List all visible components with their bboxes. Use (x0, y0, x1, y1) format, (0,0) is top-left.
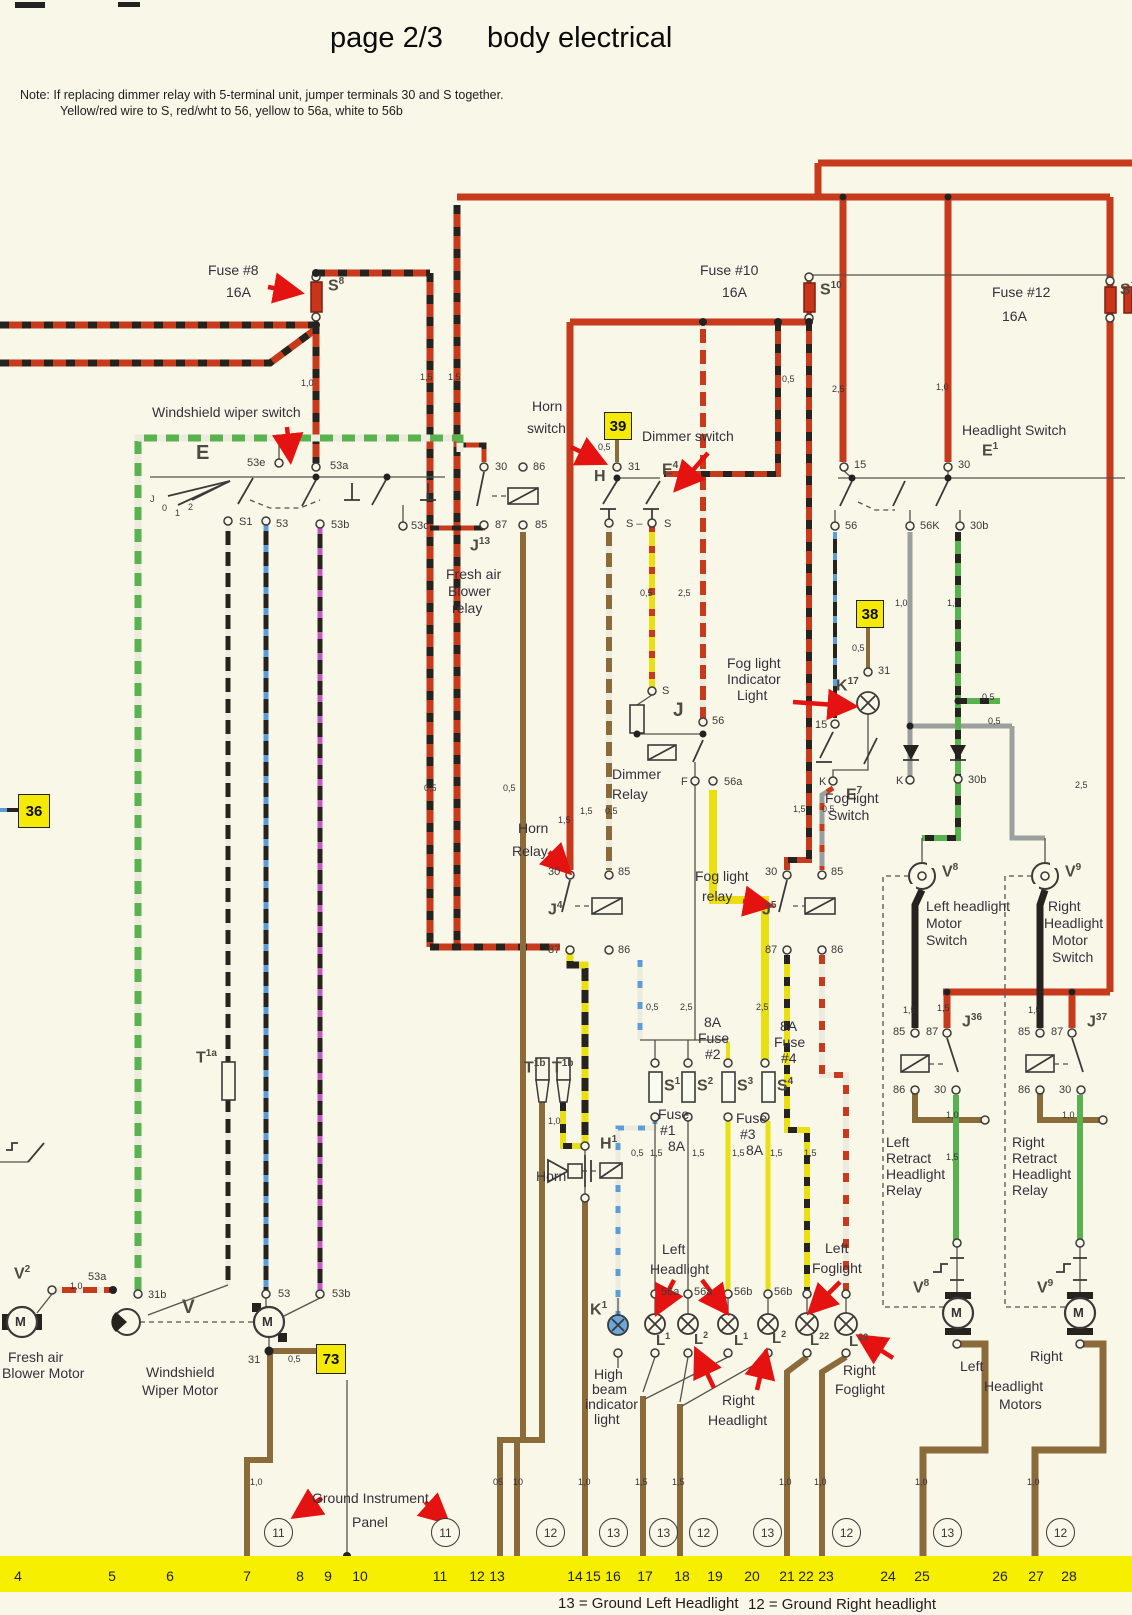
horn-switch-31: 31 (628, 461, 640, 473)
left-headlight-label1: Left (662, 1241, 685, 1257)
j5-87: 87 (765, 944, 777, 956)
ground-panel-label2: Panel (352, 1514, 388, 1530)
red-black-wires (0, 205, 809, 947)
bar-number: 22 (798, 1568, 814, 1584)
terminal-53b: 53b (331, 519, 349, 531)
pos-2: 2 (188, 502, 193, 512)
bar-number: 26 (992, 1568, 1008, 1584)
dimmer-relay-56: 56 (712, 715, 724, 727)
bar-number: 16 (605, 1568, 621, 1584)
blower-motor-label1: Fresh air (8, 1349, 63, 1365)
bar-number: 11 (433, 1568, 448, 1584)
size: 1,0 (947, 598, 960, 608)
highbeam-label2: beam (592, 1381, 627, 1397)
scan-mark (118, 2, 140, 7)
terminal-53: 53 (276, 518, 288, 530)
e7-k2: K (896, 775, 903, 787)
size: 1,0 (70, 1281, 83, 1291)
size: 0,5 (640, 588, 653, 598)
blower-motor-label2: Blower Motor (2, 1365, 84, 1381)
bar-number: 17 (637, 1568, 653, 1584)
lamp1-56a: 56a (661, 1286, 679, 1298)
left-foglight-label1: Left (825, 1240, 848, 1256)
j5-86: 86 (831, 944, 843, 956)
j37-87: 87 (1051, 1026, 1063, 1038)
fuse12-label: Fuse #12 (992, 284, 1050, 300)
j36-label1: Left (886, 1134, 909, 1150)
size: 2,5 (756, 1002, 769, 1012)
size: 1,0 (946, 1110, 959, 1120)
e1-30: 30 (958, 459, 970, 471)
fuse1-word: Fuse (658, 1106, 689, 1122)
size: 1,0 (548, 1116, 561, 1126)
l2r-symbol: L2 (772, 1329, 786, 1347)
size: 0,5 (646, 1002, 659, 1012)
e1-56: 56 (845, 520, 857, 532)
v9-motor-symbol: V9 (1037, 1278, 1053, 1297)
fog-relay-label1: Fog light (695, 868, 749, 884)
size: 0,5 (605, 806, 618, 816)
motors-label1: Headlight (984, 1378, 1043, 1394)
dimmer-relay-symbol: J (673, 700, 684, 722)
j4-86: 86 (618, 944, 630, 956)
connector-box-39: 39 (604, 412, 632, 440)
e7-15: 15 (815, 719, 827, 731)
legend-ground-left: 13 = Ground Left Headlight (558, 1595, 739, 1612)
size: 1,5 (903, 1005, 916, 1015)
j36-87: 87 (926, 1026, 938, 1038)
ground-circle: 11 (431, 1518, 460, 1547)
t-connectors (222, 1058, 570, 1102)
ground-circle: 12 (1046, 1518, 1075, 1547)
highbeam-label1: High (594, 1366, 623, 1382)
ground-panel-label1: Ground Instrument (312, 1490, 429, 1506)
j13-86: 86 (533, 461, 545, 473)
j37-label4: Relay (1012, 1182, 1048, 1198)
pos-0: 0 (162, 503, 167, 513)
wiper-motor-m: M (262, 1314, 273, 1329)
blower-relay-label1: Fresh air (446, 566, 501, 582)
wiper-motor-label2: Wiper Motor (142, 1382, 218, 1398)
fuse2-amps: 8A (704, 1014, 721, 1030)
fog-ind-31: 31 (878, 665, 890, 677)
right-foglight-label1: Right (843, 1362, 876, 1378)
fuse10-amps: 16A (722, 284, 747, 300)
fuse10-symbol: S10 (820, 280, 842, 299)
ground-circle: 13 (933, 1518, 962, 1547)
scan-mark (15, 2, 45, 8)
size: 0,5 (982, 692, 995, 702)
size: 1,5 (946, 1152, 959, 1162)
fog-ind-label1: Fog light (727, 655, 781, 671)
size: 1,0 (301, 378, 314, 388)
left-motor-switch-label1: Left headlight (926, 898, 1010, 914)
e7-30b: 30b (968, 774, 986, 786)
dimmer-switch-label: Dimmer switch (642, 428, 734, 444)
size: 0,5 (852, 643, 865, 653)
bar-number: 28 (1061, 1568, 1077, 1584)
blower-relay-label3: relay (452, 600, 482, 616)
size: 0,5 (598, 442, 611, 452)
bar-number: 10 (352, 1568, 368, 1584)
bar-number: 18 (674, 1568, 690, 1584)
horn-switch-label1: Horn (532, 398, 562, 414)
connector-box-73: 73 (316, 1344, 346, 1374)
j4-87: 87 (548, 944, 560, 956)
v8-motor-symbol: V8 (913, 1278, 929, 1297)
wiper-switch-label: Windshield wiper switch (152, 404, 301, 420)
size: 1,0 (915, 1477, 928, 1487)
dimmer-relay-56a: 56a (724, 776, 742, 788)
left-motor-switch-label3: Switch (926, 932, 967, 948)
fog-ind-label3: Light (737, 687, 767, 703)
bar-number: 19 (707, 1568, 723, 1584)
l1-symbol: L1 (656, 1331, 670, 1349)
fuse10-label: Fuse #10 (700, 262, 758, 278)
size: 1,5 (732, 1148, 745, 1158)
bar-number: 14 (567, 1568, 583, 1584)
l22-symbol: L22 (810, 1331, 829, 1349)
dimmer-relay-f: F (681, 776, 688, 788)
lamp2-56a: 56a (694, 1286, 712, 1298)
j4-symbol: J4 (548, 900, 562, 919)
j4-30: 30 (548, 866, 560, 878)
size: 1,5 (770, 1148, 783, 1158)
motors-left-label: Left (960, 1358, 983, 1374)
j36-symbol: J36 (962, 1012, 982, 1031)
horn-label: Horn (536, 1168, 566, 1184)
fuse1-amps: 8A (668, 1138, 685, 1154)
size: 1,0 (779, 1477, 792, 1487)
size: 1,5 (692, 1148, 705, 1158)
wiper-switch-symbol: E (196, 442, 209, 465)
size: 0,5 (631, 1148, 644, 1158)
pos-1: 1 (175, 508, 180, 518)
ground-circle: 13 (753, 1518, 782, 1547)
horn-switch-s: S – (626, 518, 643, 530)
right-motor-switch-label3: Motor (1052, 932, 1088, 948)
bar-number: 4 (14, 1568, 22, 1584)
horn-relay-label1: Horn (518, 820, 548, 836)
ground-circle: 11 (264, 1518, 293, 1547)
size: 1,5 (672, 1477, 685, 1487)
motors-right-label: Right (1030, 1348, 1063, 1364)
j5-85: 85 (831, 866, 843, 878)
size: 1,0 (578, 1477, 591, 1487)
bar-number: 25 (914, 1568, 930, 1584)
size: 1,5 (1028, 1005, 1041, 1015)
blower-relay-label2: Blower (448, 583, 491, 599)
j36-30: 30 (934, 1084, 946, 1096)
right-foglight-label2: Foglight (835, 1381, 885, 1397)
page-title-right: body electrical (487, 22, 672, 55)
size: 1,5 (804, 1148, 817, 1158)
fuse4-amps: 8A (780, 1018, 797, 1034)
fuse8-label: Fuse #8 (208, 262, 259, 278)
bar-number: 7 (243, 1568, 251, 1584)
bar-number: 12 (469, 1568, 485, 1584)
size: 2,5 (680, 1002, 693, 1012)
l2-symbol: L2 (694, 1330, 708, 1348)
size: 0,5 (424, 783, 437, 793)
lamp4-56b: 56b (774, 1286, 792, 1298)
pos-j: J (150, 494, 155, 504)
horn-switch-label2: switch (527, 420, 566, 436)
size: 1,0 (936, 382, 949, 392)
j37-30: 30 (1059, 1084, 1071, 1096)
size: 1,5 (420, 372, 433, 382)
terminal-53c: 53c (411, 520, 429, 532)
j4-85: 85 (618, 866, 630, 878)
right-motor-switch-label1: Right (1048, 898, 1081, 914)
fuse12-amps: 16A (1002, 308, 1027, 324)
bar-number: 21 (779, 1568, 795, 1584)
bar-number: 6 (166, 1568, 174, 1584)
connector-box-36: 36 (18, 794, 50, 828)
bar-number: 9 (324, 1568, 332, 1584)
j37-85: 85 (1018, 1026, 1030, 1038)
fuse8-symbol: S8 (328, 276, 344, 295)
ground-circle: 13 (599, 1518, 628, 1547)
highbeam-label3: indicator (585, 1396, 638, 1412)
left-foglight-label2: Foglight (812, 1260, 862, 1276)
right-headlight-label2: Headlight (708, 1412, 767, 1428)
size: 1,0 (814, 1477, 827, 1487)
s3-symbol: S3 (737, 1076, 753, 1095)
fuse4-word: Fuse (774, 1034, 805, 1050)
h1-symbol: H1 (600, 1134, 617, 1153)
fuse3-word: Fuse (736, 1110, 767, 1126)
fuse1-num: #1 (660, 1122, 676, 1138)
v2-m: M (15, 1314, 26, 1329)
size: 1,5 (580, 806, 593, 816)
terminal-53e: 53e (247, 457, 265, 469)
j36-86: 86 (893, 1084, 905, 1096)
j13-30: 30 (495, 461, 507, 473)
j13-87: 87 (495, 519, 507, 531)
ground-circle: 13 (649, 1518, 678, 1547)
j5-30: 30 (765, 866, 777, 878)
wiper-motor-label1: Windshield (146, 1364, 214, 1380)
fuse3-num: #3 (740, 1126, 756, 1142)
bar-number: 5 (108, 1568, 116, 1584)
dimmer-relay-s: S (662, 685, 669, 697)
e1-30b: 30b (970, 520, 988, 532)
size: 0,5 (988, 716, 1001, 726)
brown-wires (247, 440, 1103, 1556)
j5-symbol: J5 (762, 900, 776, 919)
lamp-symbols (608, 692, 879, 1335)
l23-symbol: L23 (849, 1332, 868, 1350)
wiper-motor-symbol: V (182, 1297, 195, 1319)
blower-53a: 53a (88, 1271, 106, 1283)
j37-label2: Retract (1012, 1150, 1057, 1166)
l1r-symbol: L1 (734, 1331, 748, 1349)
v8-motor-m: M (951, 1305, 962, 1320)
v8-switch-symbol: V8 (942, 862, 958, 881)
fuse3-amps: 8A (746, 1142, 763, 1158)
j36-label3: Headlight (886, 1166, 945, 1182)
annotation-arrows (268, 287, 893, 1519)
j37-86: 86 (1018, 1084, 1030, 1096)
wiper-wires (148, 524, 320, 1315)
fuse4-num: #4 (781, 1050, 797, 1066)
ground-circle: 12 (689, 1518, 718, 1547)
fuse2-num: #2 (705, 1046, 721, 1062)
wiring-diagram-page: page 2/3 body electrical Note: If replac… (0, 0, 1132, 1615)
size: 10 (513, 1477, 523, 1487)
terminal-53a: 53a (330, 460, 348, 472)
right-headlight-label1: Right (722, 1392, 755, 1408)
j36-label4: Relay (886, 1182, 922, 1198)
size: 1,5 (937, 1003, 950, 1013)
fog-relay-label2: relay (702, 888, 732, 904)
bar-number: 13 (489, 1568, 505, 1584)
motor-switch-symbols (908, 860, 1058, 892)
wiper-53: 53 (278, 1288, 290, 1300)
size: 2,5 (678, 588, 691, 598)
wiper-31b: 31b (148, 1289, 166, 1301)
lamp3-56b: 56b (734, 1286, 752, 1298)
e1-15: 15 (854, 459, 866, 471)
left-headlight-label2: Headlight (650, 1261, 709, 1277)
dimmer-switch-s: S (664, 518, 671, 530)
t1b-symbol-a: T1b (524, 1058, 545, 1077)
v9-switch-symbol: V9 (1065, 862, 1081, 881)
j36-label2: Retract (886, 1150, 931, 1166)
wiper-31: 31 (248, 1354, 260, 1366)
j36-85: 85 (893, 1026, 905, 1038)
size: 05 (493, 1477, 503, 1487)
size: 0,5 (503, 783, 516, 793)
fuse-symbols (311, 282, 1132, 1102)
s4-symbol: S4 (777, 1076, 793, 1095)
size: 1,5 (650, 1148, 663, 1158)
t1b-symbol-b: T1b (552, 1058, 573, 1077)
horn-relay-label2: Relay (512, 843, 548, 859)
page-title-left: page 2/3 (330, 22, 443, 55)
note-line1: Note: If replacing dimmer relay with 5-t… (20, 88, 504, 102)
k17-symbol: K17 (836, 676, 859, 695)
size: 1,0 (250, 1477, 263, 1487)
e7-k1: K (819, 776, 826, 788)
s1-symbol: S1 (664, 1076, 680, 1095)
highbeam-label4: light (594, 1411, 620, 1427)
note-line2: Yellow/red wire to S, red/wht to 56, yel… (60, 104, 403, 118)
bar-number: 27 (1028, 1568, 1044, 1584)
horn-switch-symbol: H (594, 468, 606, 486)
dimmer-relay-label1: Dimmer (612, 766, 661, 782)
connector-box-38: 38 (856, 600, 884, 628)
wiper-53b: 53b (332, 1288, 350, 1300)
size: 2,5 (832, 384, 845, 394)
j37-label1: Right (1012, 1134, 1045, 1150)
motors-label2: Motors (999, 1396, 1042, 1412)
size: 1,5 (558, 815, 571, 825)
right-motor-switch-label4: Switch (1052, 949, 1093, 965)
j13-85: 85 (535, 519, 547, 531)
headlight-switch-label: Headlight Switch (962, 422, 1066, 438)
size: 2,5 (1075, 780, 1088, 790)
j37-symbol: J37 (1087, 1012, 1107, 1031)
fuse12-symbol: S12 (1120, 280, 1132, 299)
size: 1,0 (895, 598, 908, 608)
fog-ind-label2: Indicator (727, 671, 781, 687)
green-white-wire (138, 438, 460, 1290)
e1-symbol: E1 (982, 441, 998, 460)
bar-number: 23 (818, 1568, 834, 1584)
bar-number: 8 (296, 1568, 304, 1584)
size: 1,5 (793, 804, 806, 814)
j13-symbol: J13 (470, 536, 490, 555)
dimmer-relay-label2: Relay (612, 786, 648, 802)
j37-label3: Headlight (1012, 1166, 1071, 1182)
k1-symbol: K1 (590, 1300, 607, 1319)
s2-symbol: S2 (697, 1076, 713, 1095)
size: 1,5 (635, 1477, 648, 1487)
terminal-s1: S1 (239, 516, 252, 528)
size: 0,5 (822, 804, 835, 814)
bar-number: 20 (744, 1568, 760, 1584)
size: 0,5 (288, 1354, 301, 1364)
e1-56k: 56K (920, 520, 940, 532)
t1a-symbol: T1a (196, 1048, 217, 1067)
green-wires (922, 532, 1080, 1240)
right-motor-switch-label2: Headlight (1044, 915, 1103, 931)
size: 0,5 (782, 374, 795, 384)
size: 1,0 (1027, 1477, 1040, 1487)
bar-number: 24 (880, 1568, 896, 1584)
fuse2-word: Fuse (698, 1030, 729, 1046)
ground-circle: 12 (832, 1518, 861, 1547)
bar-number: 15 (585, 1568, 601, 1584)
size: 1,0 (1062, 1110, 1075, 1120)
fuse8-amps: 16A (226, 284, 251, 300)
left-motor-switch-label2: Motor (926, 915, 962, 931)
relay-coils (508, 488, 1054, 1178)
size: 1,5 (448, 372, 461, 382)
v2-symbol: V2 (14, 1264, 30, 1283)
ground-circle: 12 (536, 1518, 565, 1547)
dimmer-switch-symbol: E4 (662, 460, 678, 479)
v9-motor-m: M (1073, 1305, 1084, 1320)
legend-ground-right: 12 = Ground Right headlight (748, 1596, 936, 1613)
